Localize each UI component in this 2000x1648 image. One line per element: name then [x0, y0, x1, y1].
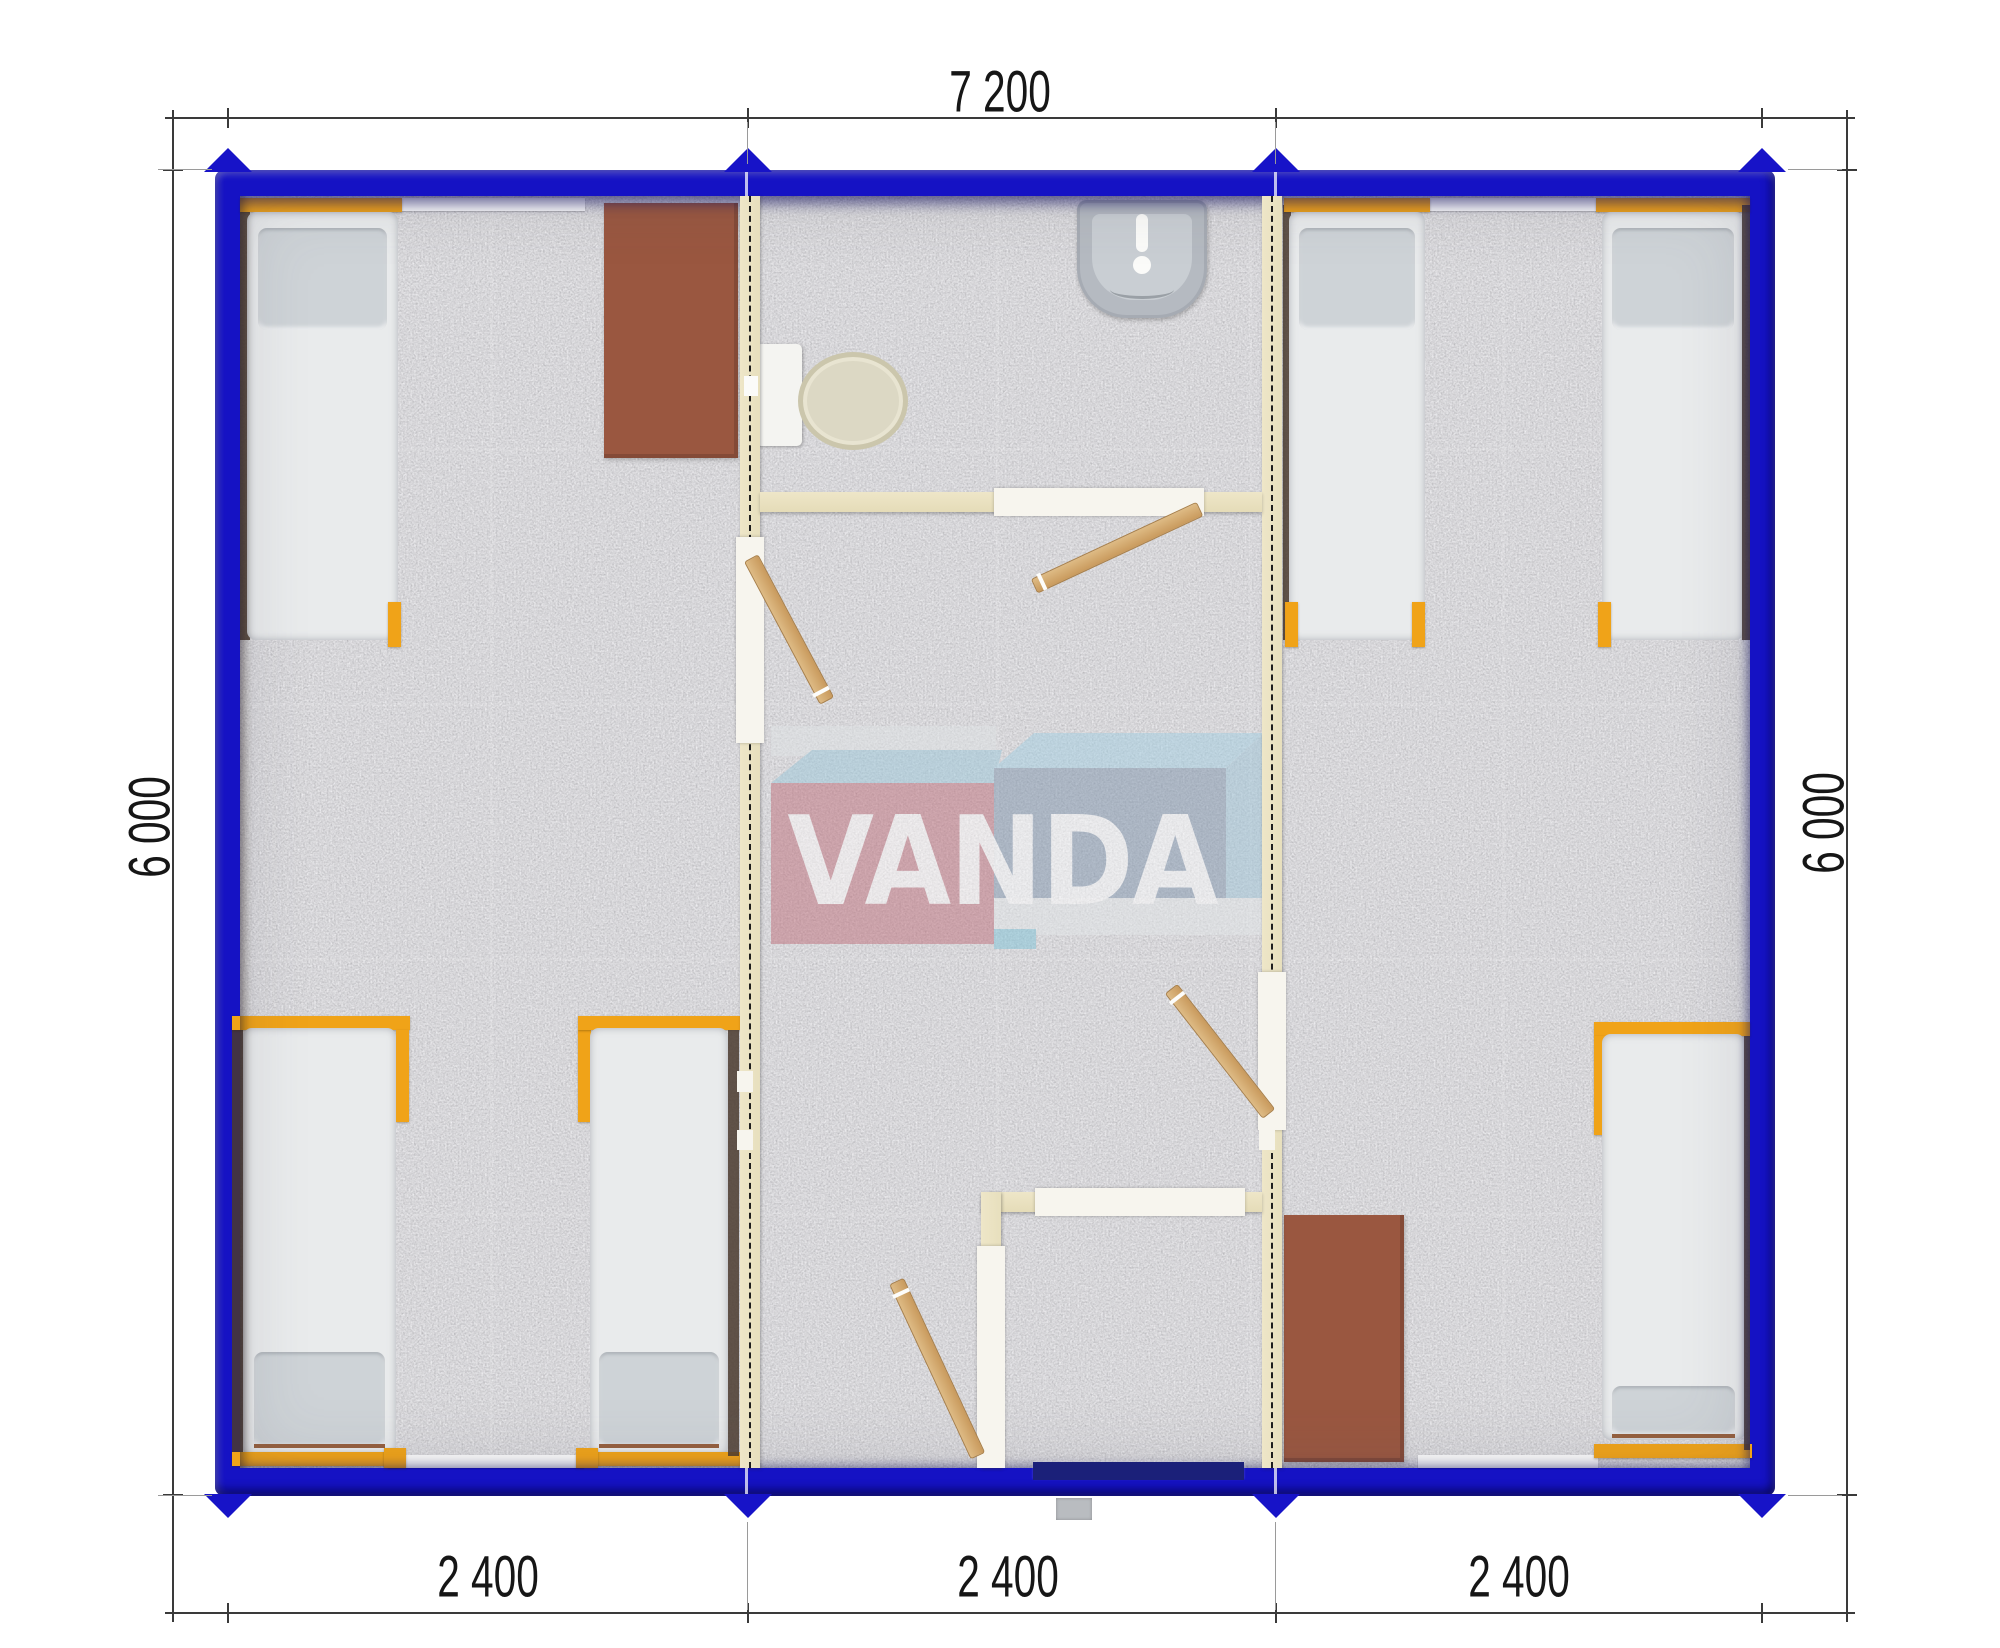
bed-pillow	[258, 228, 387, 330]
module-arrow	[1738, 1494, 1786, 1518]
dim-tick	[227, 1603, 229, 1623]
bed-frame-line	[599, 1444, 719, 1448]
module-arrow	[1252, 148, 1300, 172]
entrance-step	[1056, 1498, 1092, 1520]
door-hinge-mark	[1169, 991, 1186, 1005]
dim-tick	[227, 108, 229, 128]
dim-extension	[747, 122, 748, 164]
bed-pillow	[1299, 228, 1415, 330]
bed-frame-edge	[232, 1030, 243, 1456]
bed-foot-post	[1598, 602, 1611, 647]
bed-pillow	[599, 1352, 719, 1448]
bed-foot-post	[1285, 602, 1298, 647]
bed-pillow	[1612, 228, 1734, 330]
bed-head-rail	[1596, 198, 1750, 212]
bed-side-rail	[396, 1030, 409, 1122]
door-hinge-mark	[1036, 573, 1047, 591]
dim-label-module-2: 2 400	[957, 1544, 1059, 1611]
dim-extension	[1788, 1495, 1842, 1496]
bed-frame-edge	[1744, 1036, 1750, 1450]
dim-label-module-1: 2 400	[437, 1544, 539, 1611]
module-arrow	[1252, 1494, 1300, 1518]
dim-tick	[1761, 108, 1763, 128]
wall-jamb	[1259, 1128, 1275, 1150]
faucet-icon	[1136, 214, 1148, 252]
dim-extension	[158, 169, 212, 170]
bed-foot-rail	[232, 1452, 396, 1466]
desk-left-room	[604, 203, 738, 458]
bed-frame-line	[254, 1444, 385, 1448]
module-arrow	[724, 148, 772, 172]
bed-foot-post	[384, 1448, 406, 1468]
bed-foot-rail	[1594, 1444, 1752, 1458]
window-sill	[388, 1455, 584, 1468]
toilet-tank	[756, 344, 802, 446]
toilet-paper-holder	[744, 376, 758, 396]
module-seam	[745, 172, 748, 196]
module-arrow	[204, 1494, 252, 1518]
dim-line-bottom	[165, 1612, 1855, 1614]
toilet-bowl	[798, 352, 908, 450]
dim-extension	[747, 1522, 748, 1610]
bed-head-rail	[1284, 198, 1430, 212]
module-seam	[745, 1468, 748, 1494]
door-casing-vestibule-top	[1035, 1188, 1245, 1216]
bed-frame-edge	[1742, 205, 1750, 640]
dim-label-height-left: 6 000	[117, 776, 184, 878]
dim-extension	[1275, 122, 1276, 164]
window-sill	[1428, 198, 1600, 211]
bed-frame-edge	[728, 1030, 739, 1456]
bed-foot-post	[1412, 602, 1425, 647]
floor-plan-canvas: VANDA	[0, 0, 2000, 1648]
entrance-door	[1033, 1462, 1244, 1480]
bed-pillow	[1612, 1386, 1735, 1436]
dim-label-height-right: 6 000	[1791, 772, 1858, 874]
partition-centerline	[1271, 196, 1273, 1468]
dim-extension	[158, 1495, 212, 1496]
wall-jamb	[737, 1130, 753, 1150]
bed-head-rail	[240, 198, 402, 212]
dim-extension	[1788, 169, 1842, 170]
bed-pillow	[254, 1352, 385, 1448]
module-seam	[1274, 1468, 1277, 1494]
bed-foot-post	[576, 1448, 598, 1468]
watermark-logo: VANDA	[760, 715, 1265, 960]
desk-right-room	[1284, 1215, 1404, 1462]
bed-frame-line	[1612, 1434, 1735, 1438]
dim-extension	[1275, 1522, 1276, 1610]
faucet-knob	[1133, 256, 1151, 274]
module-seam	[1274, 172, 1277, 196]
window-sill	[1418, 1455, 1598, 1468]
module-arrow	[1738, 148, 1786, 172]
dim-label-module-3: 2 400	[1468, 1544, 1570, 1611]
partition-wall-right	[1262, 196, 1282, 1468]
door-casing-vestibule-side	[977, 1246, 1005, 1468]
window-sill	[390, 198, 585, 211]
door-hinge-mark	[892, 1288, 910, 1299]
dim-tick	[1761, 1603, 1763, 1623]
bed-mattress	[1602, 1034, 1745, 1440]
bed-foot-rail	[578, 1452, 742, 1466]
wall-jamb	[737, 1071, 753, 1092]
door-hinge-mark	[812, 686, 830, 698]
sink-drain-line	[1110, 280, 1174, 299]
watermark-text: VANDA	[787, 791, 1216, 934]
dim-label-total-width: 7 200	[949, 59, 1051, 126]
bed-foot-post	[388, 602, 401, 647]
module-arrow	[724, 1494, 772, 1518]
